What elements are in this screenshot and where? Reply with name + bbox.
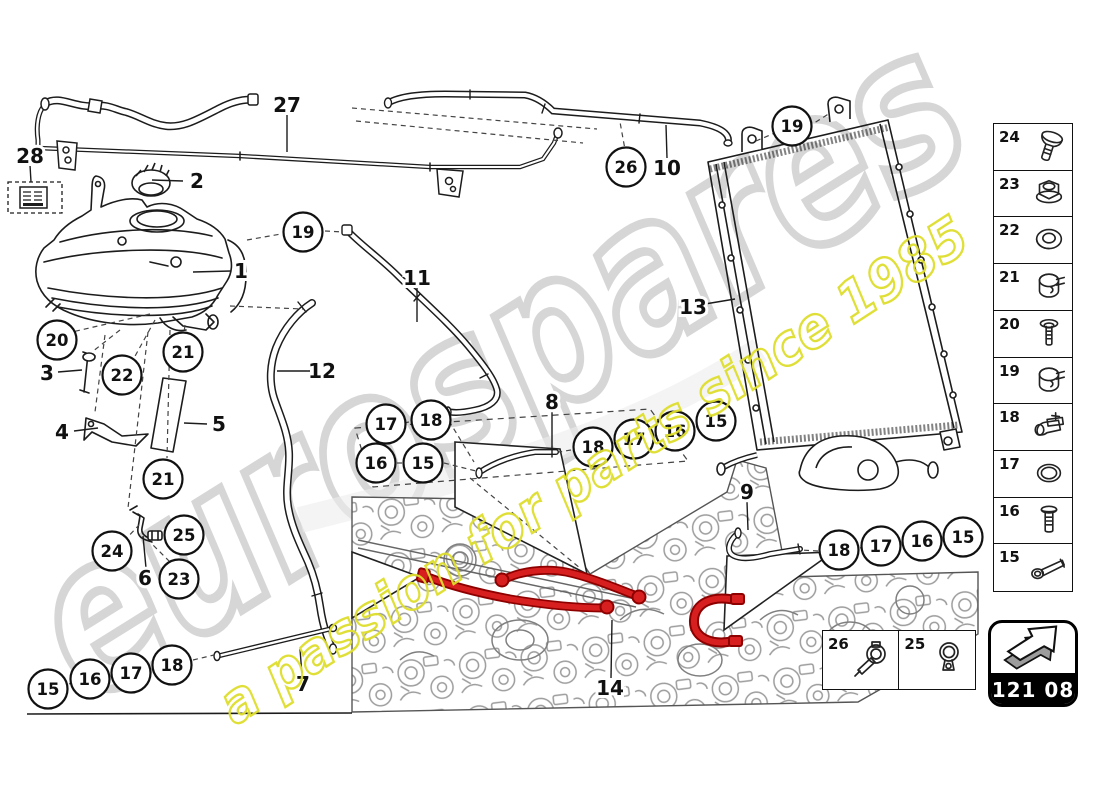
sidebar-part-number: 22 xyxy=(999,221,1020,239)
sidebar-part-number: 17 xyxy=(999,455,1020,473)
svg-text:15: 15 xyxy=(412,454,435,473)
svg-text:21: 21 xyxy=(152,470,175,489)
svg-text:16: 16 xyxy=(79,670,102,689)
callout-circle-17[interactable]: 17 xyxy=(112,654,151,693)
svg-text:15: 15 xyxy=(952,528,975,547)
inset-part-25[interactable]: 25 xyxy=(898,630,976,690)
sidebar-part-21[interactable]: 21 xyxy=(993,263,1073,311)
part-label-5: 5 xyxy=(212,412,226,436)
svg-text:18: 18 xyxy=(420,411,443,430)
svg-text:25: 25 xyxy=(173,526,196,545)
svg-text:16: 16 xyxy=(365,454,388,473)
sidebar-part-19[interactable]: 19 xyxy=(993,357,1073,405)
sidebar-part-number: 16 xyxy=(999,502,1020,520)
svg-text:15: 15 xyxy=(37,680,60,699)
stud-bolt-icon xyxy=(1028,502,1070,540)
o-ring-icon xyxy=(1028,455,1070,493)
part-label-9: 9 xyxy=(740,480,754,504)
callout-circle-21[interactable]: 21 xyxy=(144,460,183,499)
sidebar-part-22[interactable]: 22 xyxy=(993,216,1073,264)
long-screw-icon xyxy=(1028,548,1070,586)
sidebar-part-number: 23 xyxy=(999,175,1020,193)
svg-text:21: 21 xyxy=(172,343,195,362)
svg-text:17: 17 xyxy=(120,664,143,683)
inset-part-number: 26 xyxy=(828,635,849,653)
part-label-10: 10 xyxy=(653,156,681,180)
ring-clamp-icon xyxy=(927,639,971,679)
part-label-13: 13 xyxy=(679,295,707,319)
sidebar-part-number: 21 xyxy=(999,268,1020,286)
callout-circle-16[interactable]: 16 xyxy=(903,522,942,561)
callout-circle-25[interactable]: 25 xyxy=(165,516,204,555)
callout-circle-21[interactable]: 21 xyxy=(164,333,203,372)
svg-text:22: 22 xyxy=(111,366,134,385)
arrow-3d-icon xyxy=(991,623,1075,673)
flange-nut-icon xyxy=(1028,175,1070,213)
sidebar-part-17[interactable]: 17 xyxy=(993,450,1073,498)
part-label-11: 11 xyxy=(403,266,431,290)
part-label-14: 14 xyxy=(596,676,624,700)
callout-circle-20[interactable]: 20 xyxy=(38,321,77,360)
callout-circle-24[interactable]: 24 xyxy=(93,532,132,571)
sidebar-part-24[interactable]: 24 xyxy=(993,123,1073,171)
svg-text:23: 23 xyxy=(168,570,191,589)
svg-text:16: 16 xyxy=(911,532,934,551)
part-label-2: 2 xyxy=(190,169,204,193)
callout-circle-26[interactable]: 26 xyxy=(607,148,646,187)
sidebar-part-20[interactable]: 20 xyxy=(993,310,1073,358)
part-label-28: 28 xyxy=(16,144,44,168)
part-label-1: 1 xyxy=(234,259,248,283)
svg-text:19: 19 xyxy=(781,117,804,136)
dome-screw-icon xyxy=(1028,128,1070,166)
svg-text:24: 24 xyxy=(101,542,124,561)
diagram-code: 121 08 xyxy=(991,673,1075,707)
svg-text:20: 20 xyxy=(46,331,69,350)
sidebar-part-15[interactable]: 15 xyxy=(993,543,1073,591)
svg-text:18: 18 xyxy=(828,541,851,560)
callout-circle-19[interactable]: 19 xyxy=(773,107,812,146)
filler-cap-drawing xyxy=(132,163,170,196)
callout-circle-23[interactable]: 23 xyxy=(160,560,199,599)
part-label-27: 27 xyxy=(273,93,301,117)
sidebar-part-number: 20 xyxy=(999,315,1020,333)
sidebar-part-23[interactable]: 23 xyxy=(993,170,1073,218)
part-label-8: 8 xyxy=(545,390,559,414)
inset-part-26[interactable]: 26 xyxy=(822,630,900,690)
sidebar-part-16[interactable]: 16 xyxy=(993,497,1073,545)
parts-diagram-stage: eurospares xyxy=(0,0,1100,800)
callout-circle-18[interactable]: 18 xyxy=(153,646,192,685)
callout-circle-19[interactable]: 19 xyxy=(284,213,323,252)
washer-screw-icon xyxy=(1028,315,1070,353)
callout-circle-17[interactable]: 17 xyxy=(862,527,901,566)
part-label-4: 4 xyxy=(55,420,69,444)
callout-circle-18[interactable]: 18 xyxy=(820,531,859,570)
expansion-tank-drawing xyxy=(36,176,246,331)
sidebar-part-number: 19 xyxy=(999,362,1020,380)
pipe-clip-icon xyxy=(1028,408,1070,446)
svg-text:17: 17 xyxy=(870,537,893,556)
sidebar-part-18[interactable]: 18 xyxy=(993,403,1073,451)
callout-circle-15[interactable]: 15 xyxy=(944,518,983,557)
diagram-baseline xyxy=(27,713,352,714)
callout-circle-16[interactable]: 16 xyxy=(71,660,110,699)
svg-text:19: 19 xyxy=(292,223,315,242)
hose-clamp-icon xyxy=(1028,268,1070,306)
svg-text:26: 26 xyxy=(615,158,638,177)
sidebar-part-number: 18 xyxy=(999,408,1020,426)
grommet-icon xyxy=(1028,221,1070,259)
inset-parts-box: 2625 xyxy=(822,630,978,690)
svg-text:17: 17 xyxy=(375,415,398,434)
callout-circle-16[interactable]: 16 xyxy=(357,444,396,483)
svg-text:18: 18 xyxy=(161,656,184,675)
part-label-6: 6 xyxy=(138,566,152,590)
parts-sidebar: 24232221201918171615 xyxy=(993,123,1073,592)
callout-circle-22[interactable]: 22 xyxy=(103,356,142,395)
sidebar-part-number: 24 xyxy=(999,128,1020,146)
sidebar-part-number: 15 xyxy=(999,548,1020,566)
callout-circle-18[interactable]: 18 xyxy=(412,401,451,440)
part-label-12: 12 xyxy=(308,359,336,383)
clamp-screwdriver-icon xyxy=(851,639,895,679)
callout-circle-15[interactable]: 15 xyxy=(404,444,443,483)
callout-circle-17[interactable]: 17 xyxy=(367,405,406,444)
inset-part-number: 25 xyxy=(904,635,925,653)
hose-clamp-icon xyxy=(1028,362,1070,400)
diagram-code-badge: 121 08 xyxy=(988,620,1078,707)
callout-circle-15[interactable]: 15 xyxy=(29,670,68,709)
label-28-sticker xyxy=(8,182,62,213)
part-label-3: 3 xyxy=(40,361,54,385)
